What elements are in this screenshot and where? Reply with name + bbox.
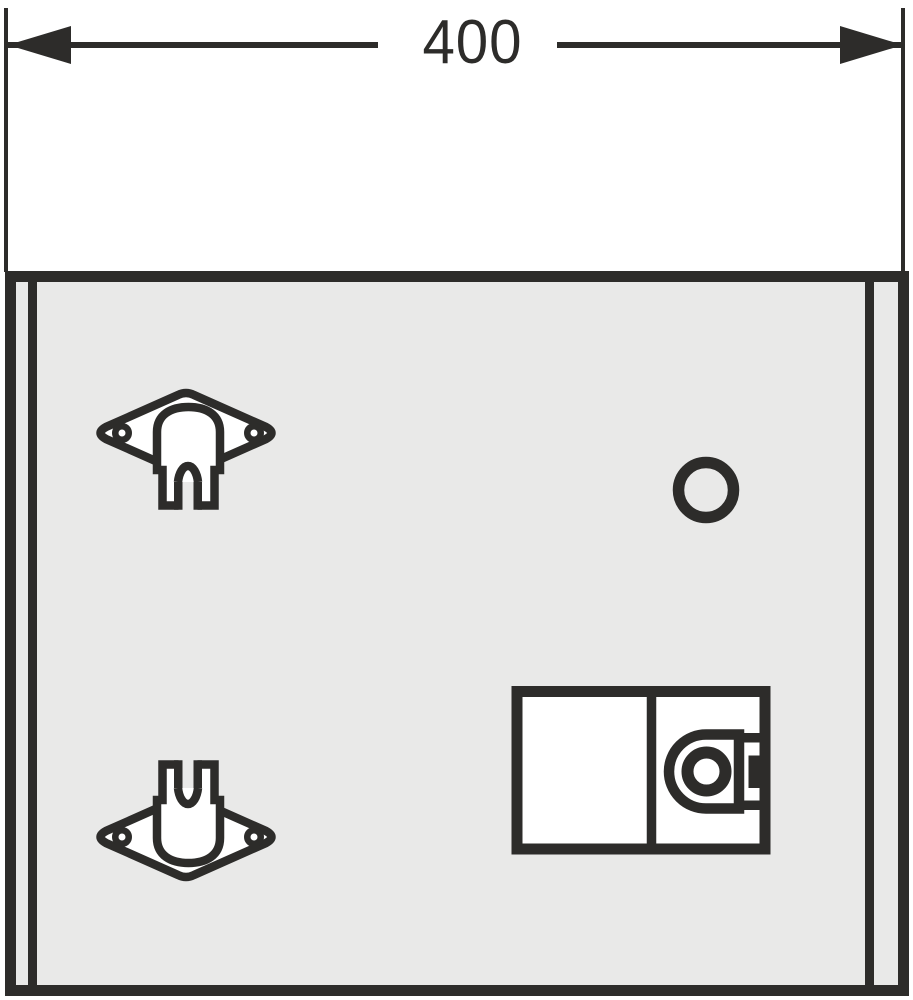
- panel-edge-line-right: [865, 282, 874, 985]
- drill-hole-icon: [669, 453, 743, 527]
- technical-drawing-canvas: 400: [0, 0, 913, 1000]
- dimension-label: 400: [404, 12, 540, 74]
- latch-bar-middle: [749, 756, 762, 789]
- lock-unit-icon: [500, 680, 780, 860]
- panel-edge-line-left: [28, 282, 37, 985]
- cabinet-front-panel: [5, 271, 909, 996]
- dimension-arrowhead-right-icon: [840, 26, 903, 64]
- dimension-arrowhead-left-icon: [8, 26, 71, 64]
- latch-tab-bottom: [744, 801, 761, 811]
- mounting-bracket-top-icon: [94, 386, 284, 514]
- latch-tab-top: [744, 733, 761, 743]
- mounting-bracket-bottom-icon: [94, 756, 284, 884]
